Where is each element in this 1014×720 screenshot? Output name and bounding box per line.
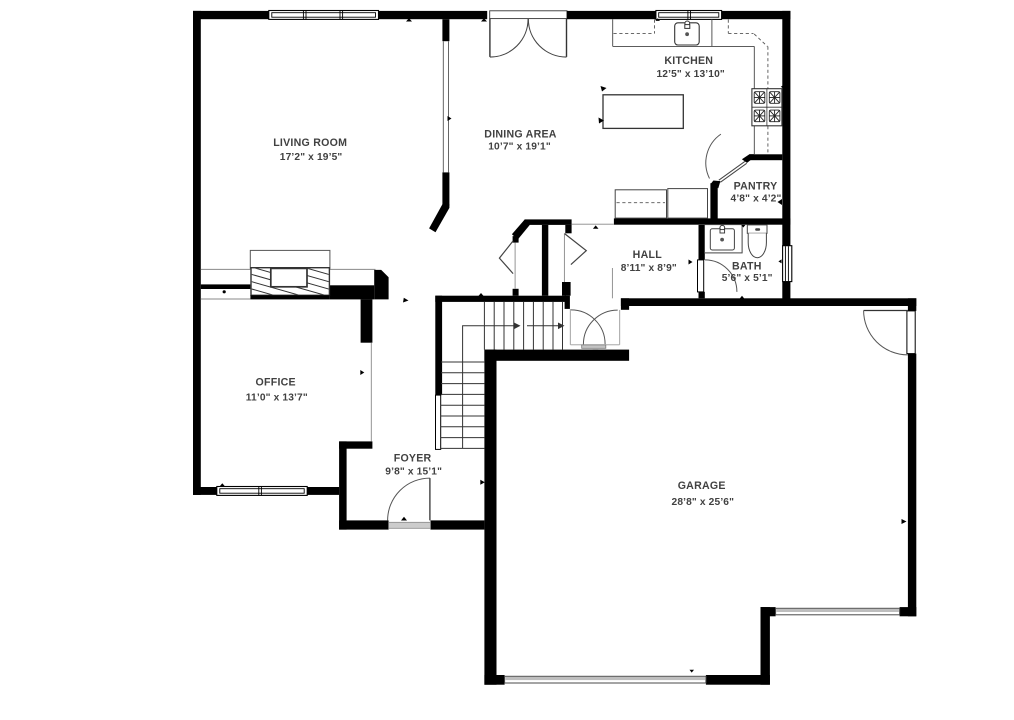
- svg-text:OFFICE: OFFICE: [256, 377, 296, 389]
- svg-text:HALL: HALL: [633, 249, 663, 261]
- svg-text:4’8" x 4’2": 4’8" x 4’2": [731, 194, 782, 205]
- svg-text:BATH: BATH: [732, 261, 762, 273]
- svg-text:28’8" x 25’6": 28’8" x 25’6": [672, 497, 735, 508]
- svg-text:GARAGE: GARAGE: [678, 480, 726, 492]
- svg-text:DINING AREA: DINING AREA: [484, 128, 556, 140]
- svg-text:12’5" x 13’10": 12’5" x 13’10": [656, 69, 724, 80]
- svg-text:5’6" x 5’1": 5’6" x 5’1": [722, 273, 773, 284]
- svg-text:FOYER: FOYER: [394, 452, 432, 464]
- svg-text:8’11" x 8’9": 8’11" x 8’9": [621, 263, 677, 274]
- svg-text:11’0" x 13’7": 11’0" x 13’7": [246, 393, 308, 404]
- svg-text:LIVING ROOM: LIVING ROOM: [273, 137, 347, 149]
- svg-text:17’2" x 19’5": 17’2" x 19’5": [280, 152, 343, 163]
- svg-text:PANTRY: PANTRY: [734, 180, 778, 192]
- svg-text:9’8" x 15’1": 9’8" x 15’1": [385, 466, 442, 477]
- svg-text:10’7" x 19’1": 10’7" x 19’1": [488, 141, 551, 152]
- svg-text:KITCHEN: KITCHEN: [664, 55, 713, 67]
